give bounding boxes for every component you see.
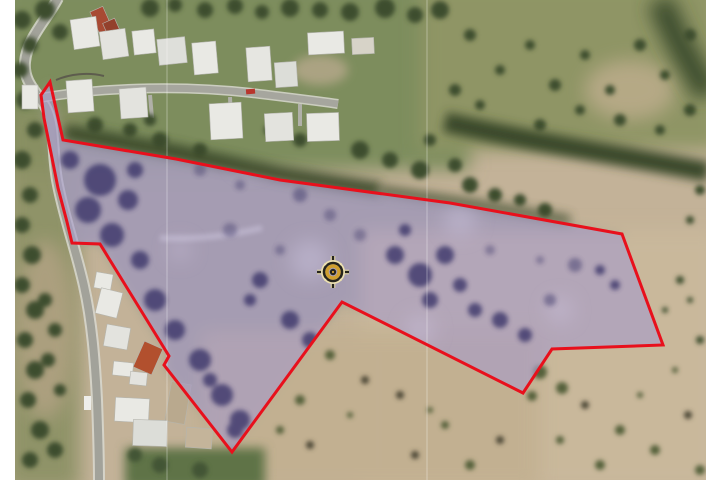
white-car [84, 396, 91, 410]
left-margin [0, 0, 15, 480]
aerial-map[interactable] [0, 0, 720, 480]
terrain [0, 0, 720, 480]
aerial-photo [0, 0, 720, 480]
red-car [246, 89, 255, 95]
right-margin [706, 0, 720, 480]
